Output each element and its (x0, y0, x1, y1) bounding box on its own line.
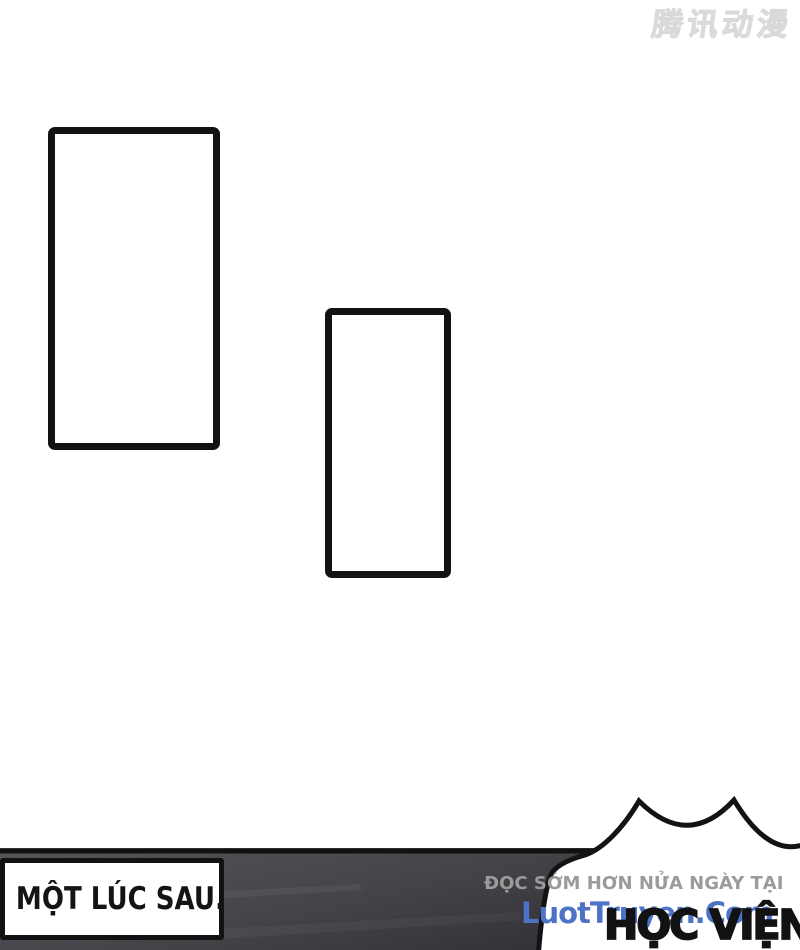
comic-page: 腾讯动漫 MỘT LÚC SAU...... ĐỌC SỚM HƠN (0, 0, 800, 950)
site-watermark-tagline: ĐỌC SỚM HƠN NỬA NGÀY TẠI (484, 873, 783, 894)
caption-box: MỘT LÚC SAU...... (0, 858, 224, 940)
speech-bubble-text: HỌC VIỆN (604, 901, 800, 949)
caption-text: MỘT LÚC SAU...... (5, 881, 224, 917)
comic-panel-large (48, 127, 220, 450)
publisher-watermark: 腾讯动漫 (650, 6, 795, 44)
comic-panel-small (325, 308, 451, 578)
